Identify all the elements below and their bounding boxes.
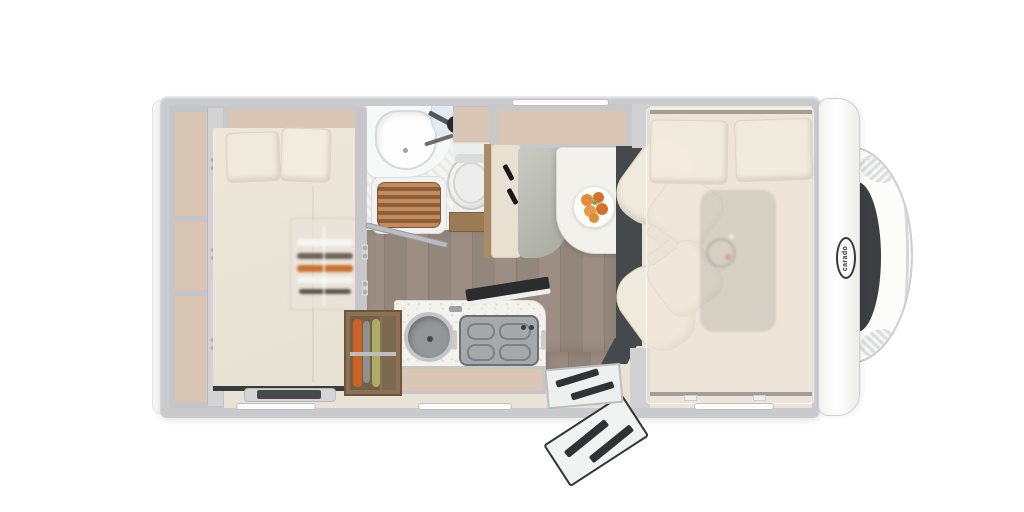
clothes-item (297, 265, 353, 272)
clothes-item (299, 289, 351, 294)
step-tread (570, 381, 614, 401)
shower-teak-grate (377, 182, 441, 228)
brand-badge: carado (836, 237, 856, 279)
bed-pillow (280, 127, 332, 183)
pan-support (467, 323, 495, 340)
hob-knob (521, 325, 526, 330)
door-handle-tab (753, 395, 766, 401)
dropbed-pillow (734, 118, 814, 183)
hanging-wardrobe-overlay (290, 218, 358, 310)
hinge-icon (362, 280, 368, 296)
shelf-divider (350, 352, 396, 356)
cab-door-window (694, 403, 774, 410)
clothes-item (297, 253, 353, 259)
wardrobe-divider (323, 225, 325, 305)
clothes-item (297, 239, 353, 246)
dropbed-pillow (649, 119, 728, 184)
toilet-tank (455, 154, 485, 163)
bed-pillow (225, 131, 281, 183)
door-handle-tab (684, 395, 697, 401)
sink-drain (427, 336, 433, 342)
wardrobe-shelf (175, 112, 207, 216)
top-wall-window (512, 99, 609, 106)
bottom-wall-window (236, 403, 316, 410)
floor-hatch-glass (257, 390, 321, 399)
hinge-icon (362, 244, 368, 260)
step-tread (555, 368, 599, 388)
pan-support (499, 344, 531, 361)
entry-step (544, 363, 623, 409)
hob-handle (452, 330, 457, 350)
hood-bumper-trim (891, 156, 909, 356)
basin-drain (403, 148, 408, 153)
motorhome-floorplan: carado (0, 0, 1024, 512)
kitchen-cabinet-front (398, 369, 542, 391)
hob-knob (529, 325, 534, 330)
washbasin-bowl (375, 110, 437, 170)
brand-logo-text: carado (843, 245, 850, 270)
kitchen-faucet-icon (449, 306, 462, 312)
wardrobe-shelf (175, 296, 207, 402)
wardrobe-shelf (175, 222, 207, 290)
dinette-overhead-inset (497, 111, 625, 144)
clothes-item (297, 277, 353, 283)
nook-overhead-cabinet (453, 106, 491, 142)
pan-support (467, 344, 495, 361)
fruit (589, 213, 599, 223)
hob-handle (541, 330, 546, 350)
gas-hob (459, 315, 539, 366)
pan-support (499, 323, 531, 340)
bottom-wall-window (418, 403, 512, 410)
bench-wood-edge (484, 144, 491, 258)
storage-shelf-unit (344, 310, 402, 396)
